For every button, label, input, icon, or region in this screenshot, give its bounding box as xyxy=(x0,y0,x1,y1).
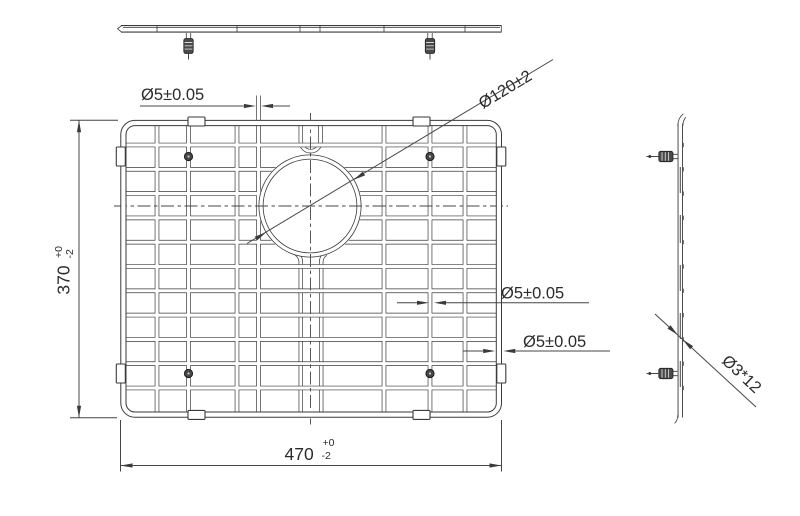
dim-foot-size-label: Ø3*12 xyxy=(718,352,765,397)
dim-center-hole-label: Ø120±2 xyxy=(476,67,536,113)
dim-overall-width-tol-lower: -2 xyxy=(322,450,331,462)
dim-overall-height: 370 +0 -2 xyxy=(53,120,118,418)
dim-wire-diameter-middle-label: Ø5±0.05 xyxy=(501,285,564,303)
side-view-foot-bottom xyxy=(647,368,678,378)
front-view xyxy=(114,96,508,425)
top-view-foot-right xyxy=(425,33,434,60)
dim-foot-size: Ø3*12 xyxy=(655,314,765,407)
dim-wire-diameter-top-label: Ø5±0.05 xyxy=(141,86,204,104)
top-view xyxy=(118,25,502,59)
dim-wire-diameter-frame-label: Ø5±0.05 xyxy=(523,333,586,351)
dim-overall-height-tol-lower: -2 xyxy=(64,249,76,258)
dim-overall-width-tol-upper: +0 xyxy=(323,437,335,449)
top-view-foot-left xyxy=(184,33,193,60)
side-view xyxy=(647,114,686,424)
drawing-canvas: Ø5±0.05 Ø120±2 370 +0 -2 470 +0 -2 Ø5±0.… xyxy=(0,0,800,516)
engineering-drawing: Ø5±0.05 Ø120±2 370 +0 -2 470 +0 -2 Ø5±0.… xyxy=(0,0,800,516)
dim-wire-diameter-middle: Ø5±0.05 xyxy=(397,285,589,305)
dim-overall-width: 470 +0 -2 xyxy=(121,420,502,472)
dim-overall-height-value: 370 xyxy=(54,265,74,294)
side-view-foot-top xyxy=(647,151,678,161)
dim-wire-diameter-top: Ø5±0.05 xyxy=(140,86,290,108)
dim-overall-width-value: 470 xyxy=(285,444,314,464)
dim-wire-diameter-frame: Ø5±0.05 xyxy=(463,333,610,353)
